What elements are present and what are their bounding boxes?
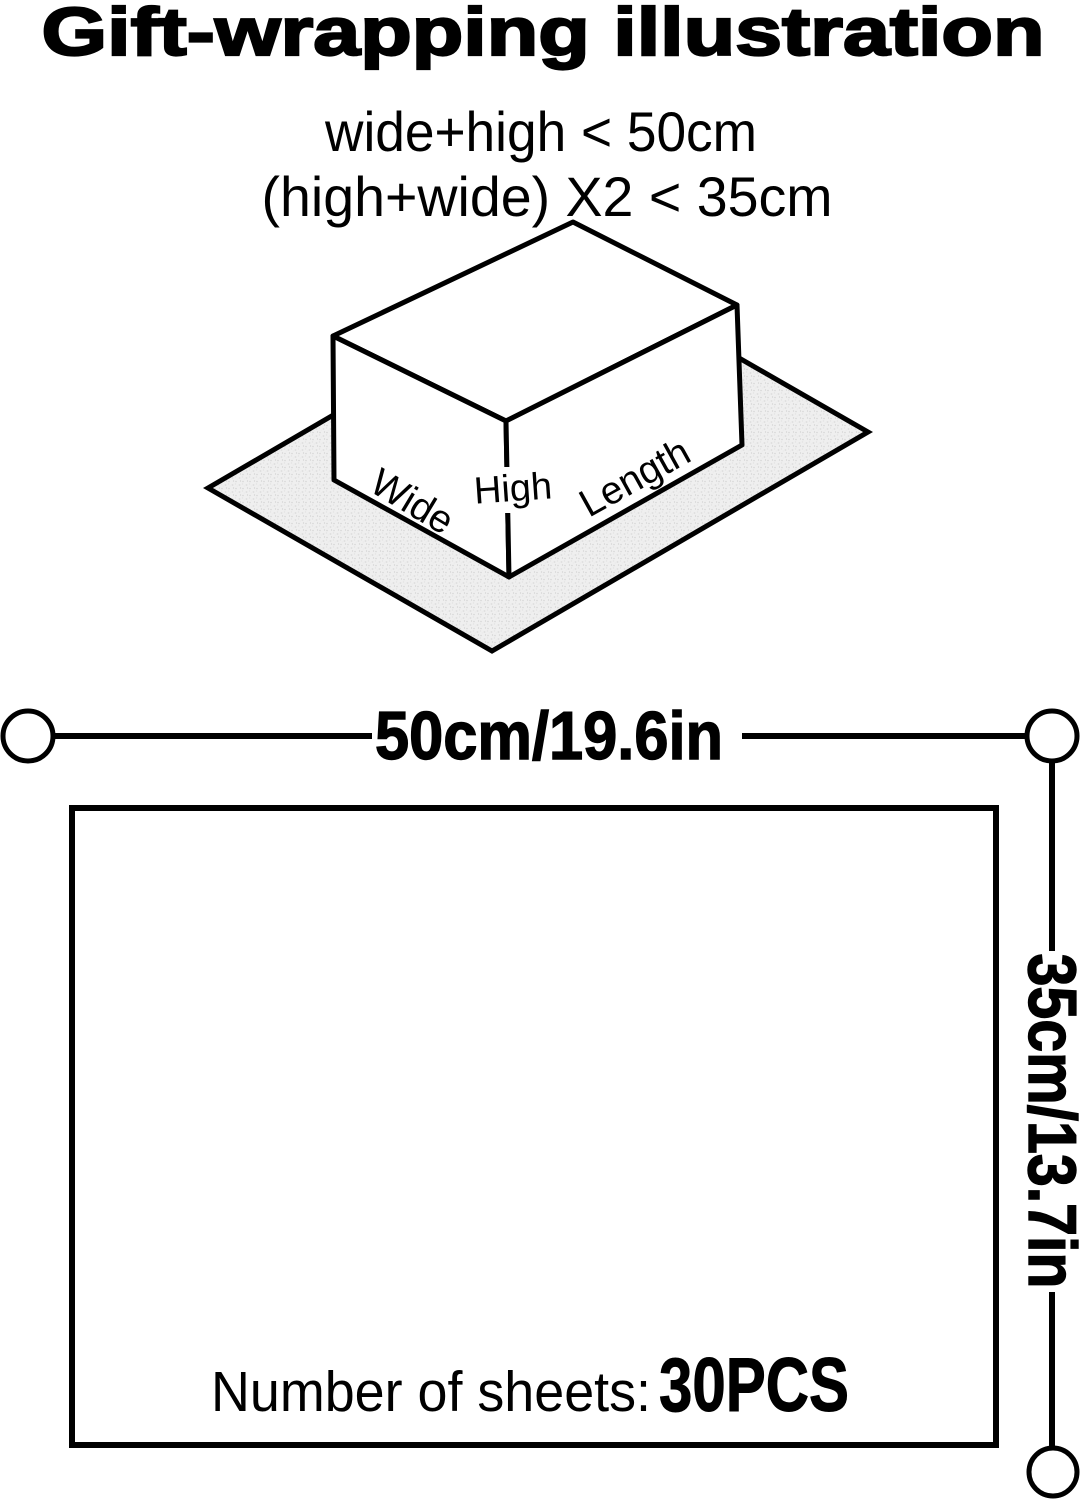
box-label-high: High [473,465,554,512]
width-dimension-label: 50cm/19.6in [375,698,723,774]
page-title: Gift-wrapping illustration [42,0,1045,70]
width-dimension-right-endpoint [1027,711,1077,761]
gift-wrapping-illustration-page: Gift-wrapping illustration wide+high < 5… [0,0,1085,1500]
sheet-count-label: Number of sheets: [211,1360,651,1424]
illustration-svg: Gift-wrapping illustration wide+high < 5… [0,0,1085,1500]
height-dimension-bottom-endpoint [1029,1448,1077,1496]
width-dimension-left-endpoint [3,711,53,761]
sheet-count-value: 30PCS [659,1343,849,1428]
height-dimension: 35cm/13.7in [1014,761,1085,1496]
condition-line-1: wide+high < 50cm [324,100,757,163]
height-dimension-label: 35cm/13.7in [1014,954,1085,1289]
condition-line-2: (high+wide) X2 < 35cm [262,165,833,228]
width-dimension: 50cm/19.6in [3,698,1077,774]
sheet-outline [72,808,996,1445]
